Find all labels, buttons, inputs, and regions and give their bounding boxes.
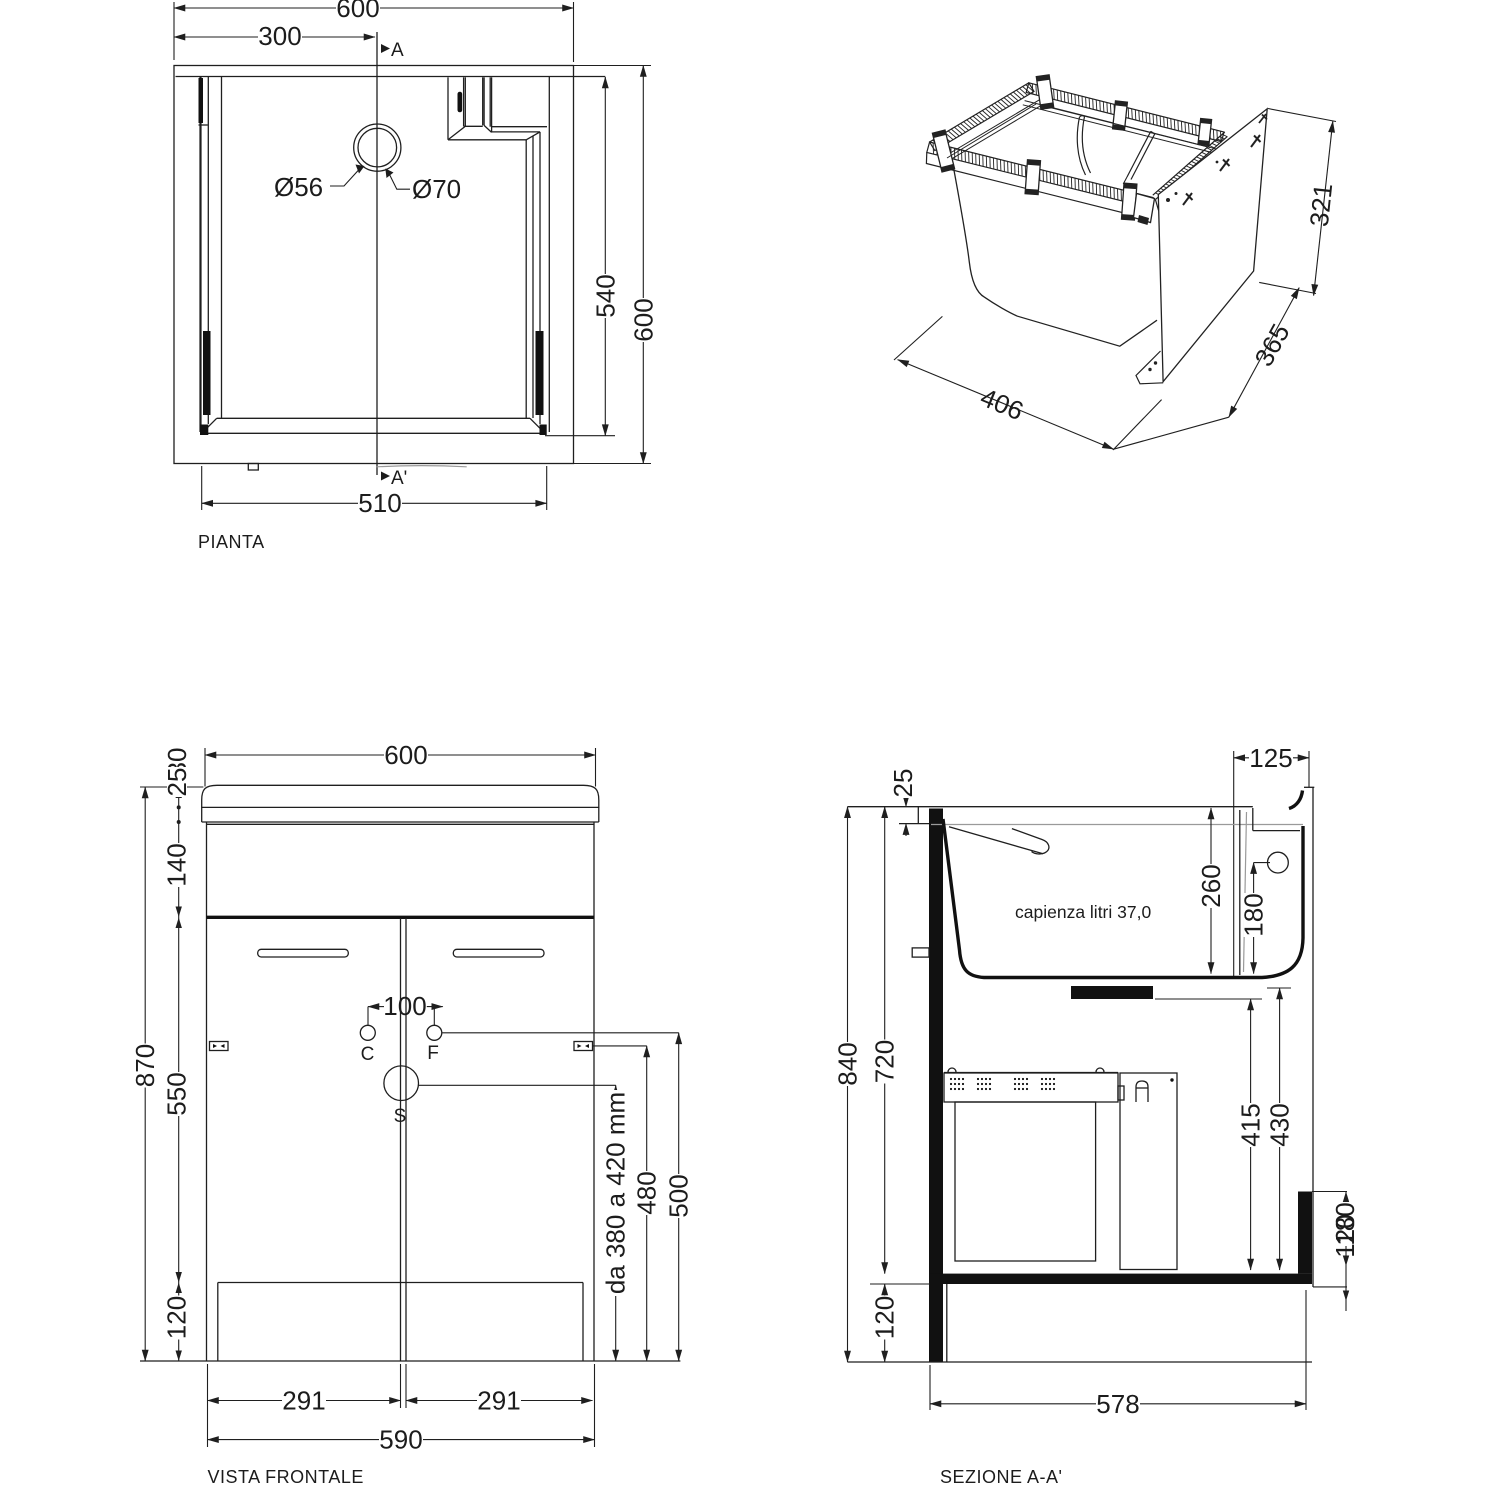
svg-text:S: S: [394, 1106, 407, 1127]
svg-text:125: 125: [1249, 743, 1292, 773]
svg-text:capienza litri 37,0: capienza litri 37,0: [1015, 902, 1151, 922]
svg-text:100: 100: [383, 991, 426, 1021]
svg-text:600: 600: [628, 298, 658, 341]
svg-text:Ø56: Ø56: [274, 172, 323, 202]
svg-text:25: 25: [888, 769, 918, 798]
svg-text:415: 415: [1236, 1103, 1266, 1146]
svg-text:500: 500: [664, 1174, 694, 1217]
svg-text:430: 430: [1265, 1103, 1295, 1146]
svg-text:291: 291: [477, 1386, 520, 1416]
svg-text:840: 840: [833, 1042, 863, 1085]
svg-text:180: 180: [1239, 893, 1269, 936]
svg-text:550: 550: [162, 1072, 192, 1115]
svg-text:SEZIONE A-A': SEZIONE A-A': [940, 1467, 1062, 1487]
svg-text:A: A: [391, 40, 404, 61]
svg-text:VISTA FRONTALE: VISTA FRONTALE: [208, 1467, 364, 1487]
svg-text:321: 321: [1304, 182, 1338, 228]
svg-text:870: 870: [130, 1044, 160, 1087]
svg-text:25: 25: [162, 768, 192, 797]
svg-text:540: 540: [590, 274, 620, 317]
svg-text:PIANTA: PIANTA: [198, 532, 265, 552]
svg-text:120: 120: [162, 1296, 192, 1339]
svg-text:120: 120: [1330, 1214, 1360, 1257]
svg-text:120: 120: [870, 1296, 900, 1339]
svg-text:600: 600: [336, 0, 379, 23]
svg-text:480: 480: [632, 1171, 662, 1214]
svg-text:260: 260: [1196, 864, 1226, 907]
svg-text:291: 291: [282, 1386, 325, 1416]
svg-text:da 380 a 420 mm: da 380 a 420 mm: [601, 1092, 631, 1294]
svg-text:510: 510: [358, 488, 401, 518]
svg-text:600: 600: [384, 740, 427, 770]
svg-text:Ø70: Ø70: [412, 174, 461, 204]
svg-text:720: 720: [870, 1040, 900, 1083]
svg-text:578: 578: [1096, 1389, 1139, 1419]
svg-text:C: C: [361, 1044, 375, 1065]
svg-text:A': A': [391, 468, 407, 489]
svg-text:590: 590: [379, 1425, 422, 1455]
svg-text:300: 300: [258, 21, 301, 51]
svg-text:140: 140: [162, 843, 192, 886]
svg-text:F: F: [427, 1043, 439, 1064]
